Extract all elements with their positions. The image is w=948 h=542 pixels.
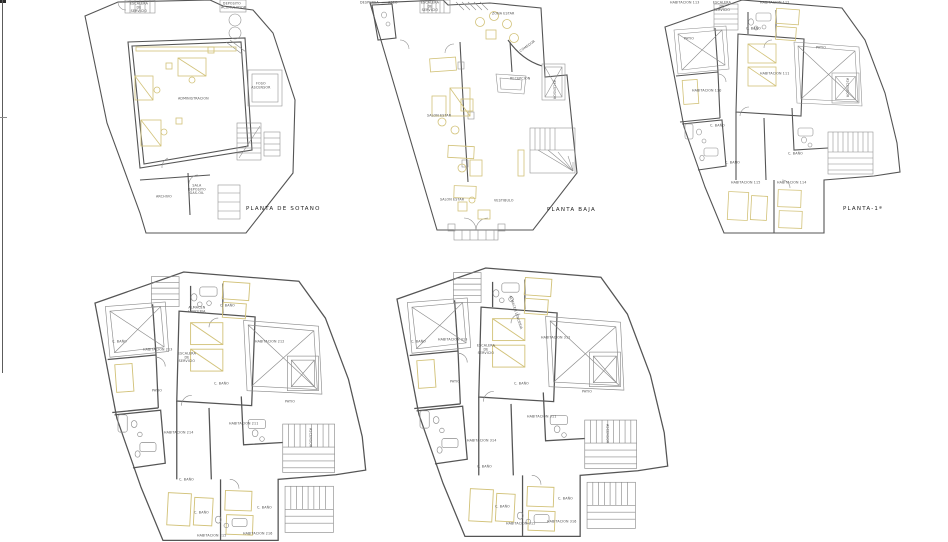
room-label-zona-estar: ZONA ESTAR [492,12,514,16]
room-label-hab-212: HABITACION 212 [255,340,284,344]
room-label-salon-estar-2: SALON ESTAR [440,198,464,202]
plan-title-primera: PLANTA-1ª [843,206,883,212]
room-label-bano-1-p2: C. BAÑO [112,340,127,344]
room-label-patio-der-p1: PATIO [816,46,826,50]
room-label-hab-114: HABITACION 114 [777,181,806,185]
room-label-salon-estar-1: SALON ESTAR [427,114,451,118]
room-label-hab-312: HABITACION 312 [541,336,570,340]
room-label-almacen-lenceria-p2: ALMACEN LENCERIA [186,306,208,314]
sheet-corner-mark [0,0,6,3]
room-label-bano-1-p3: C. BAÑO [411,340,426,344]
room-label-ascensor-baja: ASCENSOR [552,80,556,99]
room-label-hab-211: HABITACION 211 [229,422,258,426]
room-label-deposito-acumulador: DEPOSITO ACUMULADOR [221,2,243,10]
room-label-foso-ascensor: FOSO ASCENSOR [250,82,272,90]
room-label-hab-113: HABITACION 113 [670,1,699,5]
room-label-bano-3-p1: C. BAÑO [725,161,740,165]
room-label-bano-3-p3: C. BAÑO [477,465,492,469]
room-label-patio-der-p3: PATIO [582,390,592,394]
room-label-hab-215: HABITACION 215 [197,534,226,538]
room-label-despensa: DESPENSA [360,1,379,5]
room-label-patio-izq-p2: PATIO [152,389,162,393]
room-label-bano-5-p3: C. BAÑO [558,497,573,501]
room-label-bano-1-p1: C. BAÑO [746,27,761,31]
plan-title-baja: PLANTA BAJA [547,207,596,213]
room-label-bano-2-p1: C. BAÑO [710,124,725,128]
room-label-hab-316: HABITACION 316 [547,520,576,524]
room-label-escalera-servicio-p3: ESCALERA DE SERVICIO [475,344,497,355]
second-floor-plan-drawing [80,272,368,542]
room-label-patio-izq-p1: PATIO [684,37,694,41]
room-label-hab-313: HABITACION 313 [438,338,467,342]
room-label-bano-4-p1: C. BAÑO [788,152,803,156]
sheet-border-tick [0,117,7,118]
room-label-escalera-servicio-sotano: ESCALERA DE SERVICIO [128,2,150,13]
room-label-patio-der-p2: PATIO [285,400,295,404]
room-label-escalera-servicio-p1: ESCALERA DE SERVICIO [711,1,733,12]
room-label-archivo: ARCHIVO [156,195,172,199]
room-label-patio-izq-p3: PATIO [450,380,460,384]
floor-plans-sheet: ESCALERA DE SERVICIO DEPOSITO ACUMULADOR… [0,0,948,542]
room-label-hab-216: HABITACION 216 [243,532,272,536]
room-label-ascensor-p3: ASCENSOR [605,424,609,443]
room-label-bano-3-p2: C. BAÑO [214,382,229,386]
third-floor-plan-drawing [382,268,670,542]
room-label-bano-4-p2: C. BAÑO [179,478,194,482]
room-label-hab-315: HABITACION 315 [506,522,535,526]
room-label-ascensor-p2: ASCENSOR [308,428,312,447]
room-label-vestibulo: VESTIBULO [494,199,514,203]
room-label-recepcion: RECEPCION [510,77,530,81]
room-label-administracion: ADMINISTRACION [178,97,209,101]
room-label-hab-214: HABITACION 214 [164,431,193,435]
plan-title-sotano: PLANTA DE SOTANO [246,206,321,212]
room-label-bano-5-p2: C. BAÑO [194,511,209,515]
room-label-bano-2-p2: C. BAÑO [220,304,235,308]
room-label-hab-115: HABITACION 115 [731,181,760,185]
room-label-hab-111: HABITACION 111 [760,72,789,76]
room-label-bano-4-p3: C. BAÑO [495,505,510,509]
room-label-aseo: ASEO [388,1,398,5]
room-label-hab-112: HABITACION 112 [760,1,789,5]
sheet-border-line [2,0,3,373]
room-label-hab-314: HABITACION 314 [467,439,496,443]
room-label-escalera-servicio-p2: ESCALERA DE SERVICIO [176,352,198,363]
room-label-hab-110: HABITACION 110 [692,89,721,93]
room-label-sala-deposito: SALA DEPOSITO GAS-OIL [186,184,208,195]
room-label-bano-2-p3: C. BAÑO [514,382,529,386]
room-label-hab-311: HABITACION 311 [527,415,556,419]
room-label-hab-213: HABITACION 213 [143,348,172,352]
room-label-bano-6-p2: C. BAÑO [257,506,272,510]
room-label-ascensor-p1: ASCENSOR [845,78,849,97]
room-label-escalera-servicio-baja: ESCALERA DE SERVICIO [419,1,441,12]
